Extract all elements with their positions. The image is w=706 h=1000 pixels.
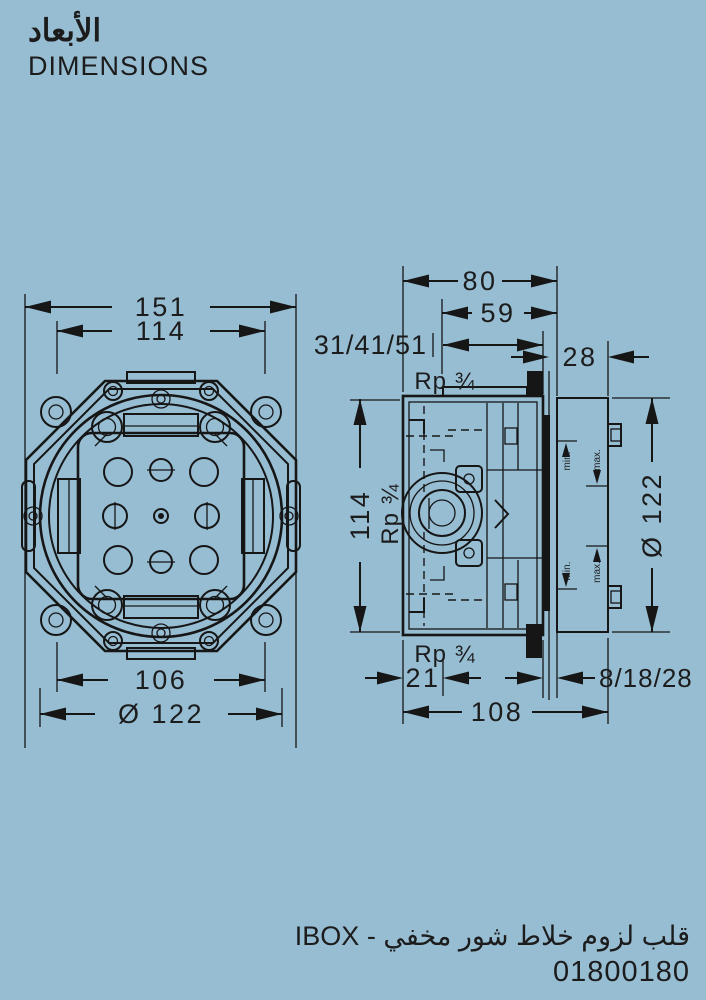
thread-label-top: Rp ¾	[414, 368, 475, 395]
dim-plate-diameter: Ø 122	[637, 472, 667, 558]
dim-plaster-range: 8/18/28	[599, 663, 693, 693]
front-view: 151 114 106 Ø 122	[22, 292, 300, 748]
product-code: 01800180	[295, 954, 690, 990]
caption-arabic: قلب لزوم خلاط شور مخفي - IBOX	[295, 920, 690, 954]
front-view-dimensions: 151 114 106 Ø 122	[25, 292, 296, 729]
dim-plate-depth: 28	[562, 342, 597, 372]
side-view: min. max. min. max.	[314, 266, 693, 727]
plaster-depth-markers: min. max. min. max.	[556, 441, 608, 589]
dimension-sheet: الأبعاد DIMENSIONS	[0, 0, 706, 1000]
min-label-top: min.	[562, 452, 573, 471]
max-label-bottom: max.	[592, 561, 603, 583]
dim-body-diameter: Ø 122	[118, 699, 204, 729]
dim-install-depth-range: 31/41/51	[314, 330, 427, 360]
dim-total-depth: 80	[462, 266, 497, 296]
dim-body-height: 114	[345, 490, 375, 541]
min-label-bottom: min.	[562, 562, 573, 581]
dim-overall-depth: 108	[471, 697, 524, 727]
dim-plate-width: 114	[136, 316, 187, 346]
product-caption: قلب لزوم خلاط شور مخفي - IBOX 01800180	[295, 920, 690, 990]
thread-label-side: Rp ¾	[377, 483, 404, 544]
dim-body-depth: 59	[480, 298, 515, 328]
dim-offset-bottom: 21	[405, 663, 440, 693]
technical-drawing: 151 114 106 Ø 122	[0, 0, 706, 1000]
max-label-top: max.	[592, 449, 603, 471]
dim-bracket-span: 106	[135, 665, 188, 695]
